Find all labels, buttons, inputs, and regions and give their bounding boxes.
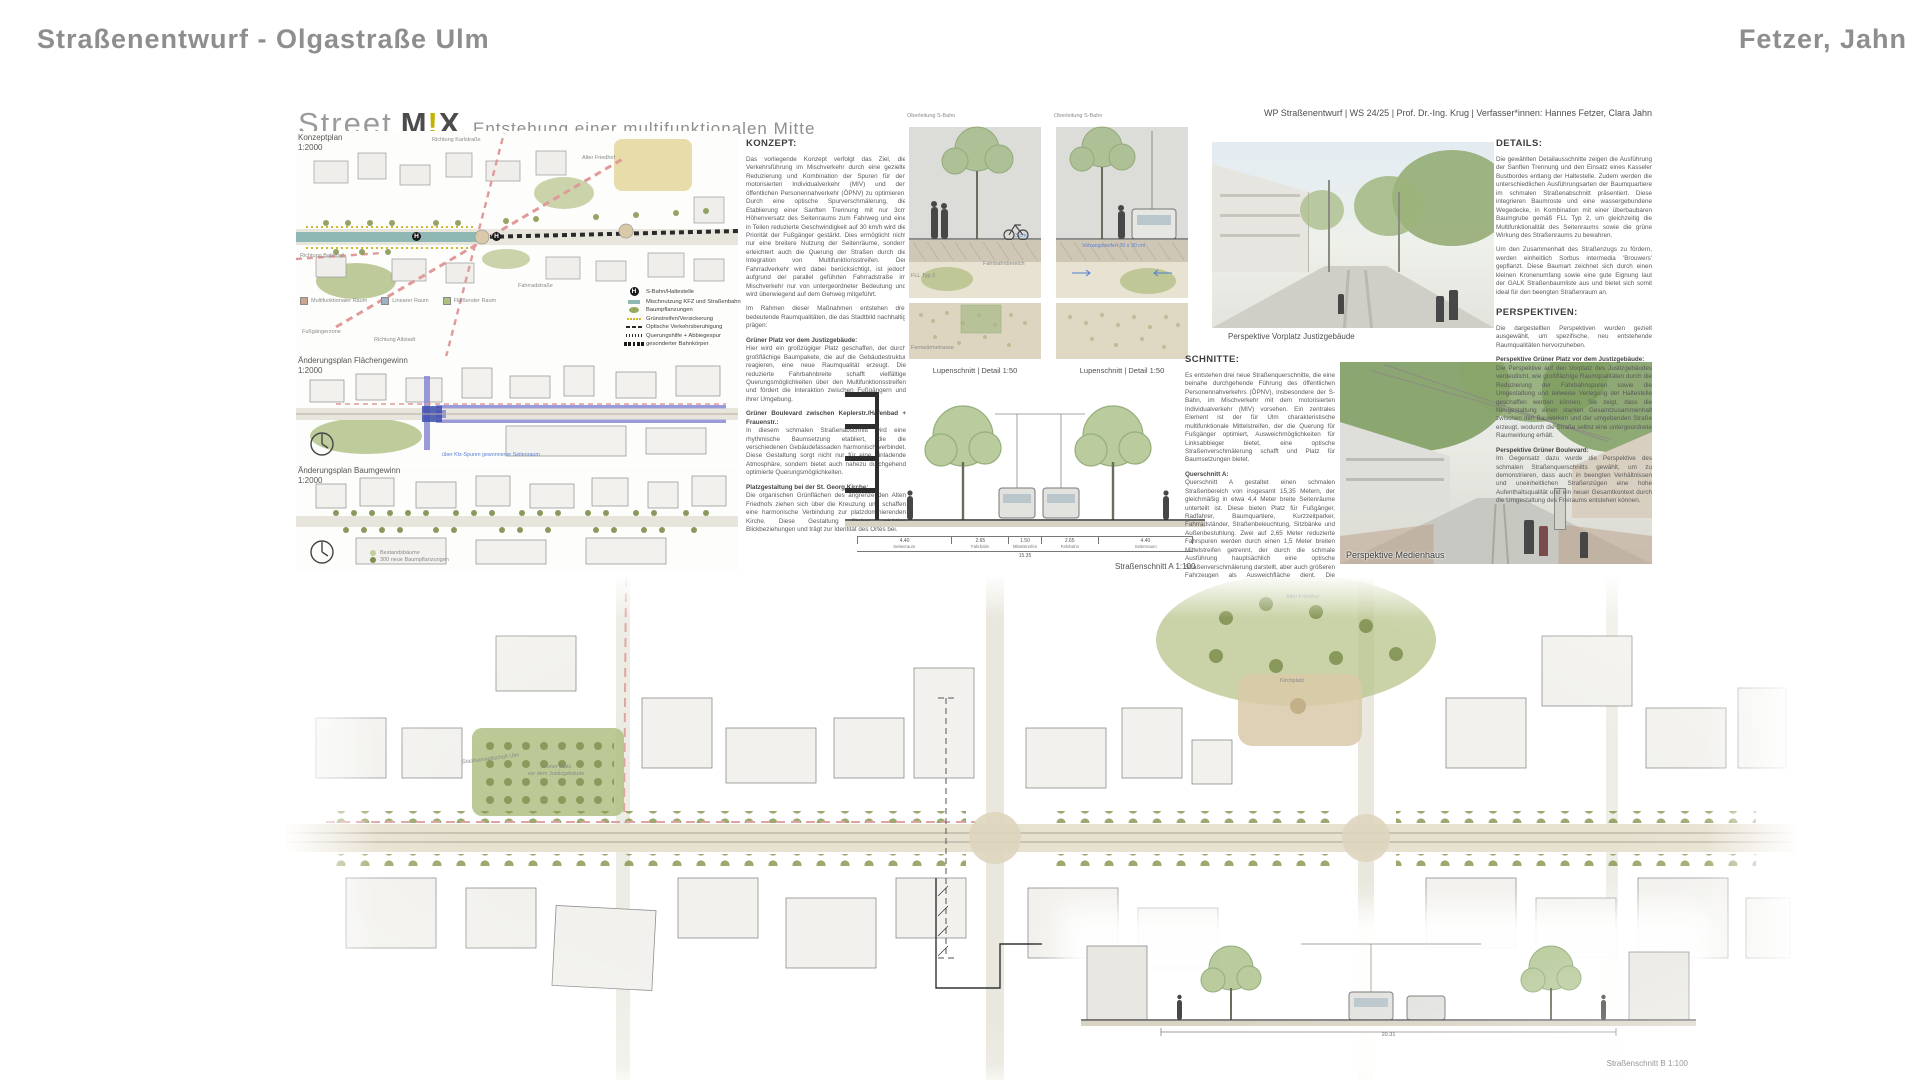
legend-label: Grünstreifen/Versickerung bbox=[646, 316, 713, 322]
bestandsbaum-swatch bbox=[370, 550, 376, 556]
konzept-paragraph: Im Rahmen dieser Maßnahmen entstehen dre… bbox=[746, 305, 906, 330]
misch-swatch bbox=[628, 300, 640, 304]
details-paragraph: Um den Zusammenhalt des Straßenzugs zu f… bbox=[1496, 246, 1652, 297]
haltestelle-icon: H bbox=[630, 287, 639, 296]
perspektiven-paragraph: Die Perspektive auf den Vorplatz des Jus… bbox=[1496, 365, 1652, 440]
bahnkoerper-swatch bbox=[624, 342, 644, 346]
baum-swatch bbox=[629, 307, 639, 313]
konzept-paragraph: Das vorliegende Konzept verfolgt das Zie… bbox=[746, 156, 906, 299]
flaechengewinn-map: Änderungsplan Flächengewinn 1:2000 bbox=[296, 356, 738, 464]
haltestelle-icon: H bbox=[412, 232, 421, 241]
dim-value: 4.40 bbox=[1098, 537, 1193, 544]
legend-label: Baumpflanzungen bbox=[646, 307, 693, 313]
baumgewinn-title: Änderungsplan Baumgewinn 1:2000 bbox=[298, 466, 400, 486]
lageplan-siteplan: Alter Friedhof Kirchplatz Staatsanwaltsc… bbox=[286, 578, 1796, 1080]
schnitte-heading: SCHNITTE: bbox=[1185, 354, 1335, 365]
legend-label: S-Bahn/Haltestelle bbox=[646, 289, 694, 295]
space-type-label: Fließender Raum bbox=[454, 298, 497, 305]
zone-label: Mittelstreifen bbox=[1009, 544, 1041, 549]
schnitt-b-label: Straßenschnitt B 1:100 bbox=[1607, 1059, 1688, 1068]
space-types-row: Multifunktionaler Raum Linearer Raum Fli… bbox=[300, 297, 496, 305]
beruhigung-swatch bbox=[626, 326, 642, 329]
lupe2-caption: Oberleitung S-Bahn bbox=[1054, 113, 1102, 120]
konzeptplan-title: Konzeptplan 1:2000 bbox=[298, 133, 342, 153]
baumgewinn-map: Änderungsplan Baumgewinn 1:2000 bbox=[296, 466, 738, 572]
lupe2-note-vorrang: Vorrangstreifen 30 x 30 cm bbox=[1082, 243, 1145, 249]
flaechengewinn-note: über Kfz-Spuren gewonnener Seitenraum bbox=[442, 452, 540, 458]
perspektiven-heading: PERSPEKTIVEN: bbox=[1496, 307, 1652, 318]
details-heading: DETAILS: bbox=[1496, 138, 1652, 149]
legend-label: gesonderter Bahnkörper bbox=[646, 341, 709, 347]
pedestrian-silhouette bbox=[1338, 294, 1344, 314]
siteplan-label-alter-friedhof: Alter Friedhof bbox=[1286, 594, 1319, 601]
dim-value: 2.65 bbox=[1041, 537, 1098, 544]
map-label-alter-friedhof: Alter Friedhof bbox=[582, 155, 615, 162]
map-label-fussgaengerzone: Fußgängerzone bbox=[302, 329, 341, 336]
perspective-justizgebaeude-image bbox=[1212, 142, 1494, 328]
konzept-subhead: Grüner Platz vor dem Justizgebäude: bbox=[746, 337, 857, 344]
lupe1-caption: Oberleitung S-Bahn bbox=[907, 113, 955, 120]
pedestrian-silhouette bbox=[1524, 520, 1534, 554]
perspektiven-subhead: Perspektive Grüner Boulevard: bbox=[1496, 447, 1589, 454]
strassenschnitt-b: 20.31 Straßenschnitt B 1:100 bbox=[1081, 928, 1696, 1070]
legend-label: Mischnutzung KFZ und Straßenbahn bbox=[646, 299, 741, 305]
dim-value: 1.50 bbox=[1008, 537, 1040, 544]
perspektiven-subhead: Perspektive Grüner Platz vor dem Justizg… bbox=[1496, 356, 1644, 363]
lupe1-note-3cm: 3 cm bbox=[1015, 233, 1026, 239]
gruenstreifen-swatch bbox=[627, 318, 641, 320]
lupe1-label: Lupenschnitt | Detail 1:50 bbox=[905, 366, 1045, 375]
pedestrian-silhouette bbox=[1539, 526, 1548, 556]
lupe1-note-fahrbahn: Fahrbahnbereich bbox=[983, 261, 1025, 268]
multifunktional-swatch bbox=[300, 297, 308, 305]
fliessend-swatch bbox=[443, 297, 451, 305]
perspektiven-paragraph: Die dargestellten Perspektiven wurden ge… bbox=[1496, 325, 1652, 350]
legend-label: Querungshilfe + Abbiegespur bbox=[646, 333, 721, 339]
schnitt-a-dims: 4.40 2.65 1.50 2.65 4.40 Seitenraum Fahr… bbox=[857, 536, 1193, 559]
pedestrian-silhouette bbox=[1436, 296, 1444, 322]
lupenschnitt-panel-2: Oberleitung S-Bahn bbox=[1052, 113, 1192, 363]
pedestrian-silhouette bbox=[1580, 532, 1588, 558]
linear-swatch bbox=[381, 297, 389, 305]
zone-label: Fahrbahn bbox=[951, 544, 1008, 549]
schnitt-b-drawing bbox=[1081, 928, 1696, 1038]
siteplan-label-gruener-platz: Grüner Platz vor dem Justizgebäude bbox=[516, 764, 596, 777]
map-label-richtung-altstadt: Richtung Altstadt bbox=[374, 337, 415, 344]
lupe1-note-fll: FLL Typ 2 bbox=[911, 273, 935, 280]
dim-value: 4.40 bbox=[857, 537, 951, 544]
zone-label: Seitenraum bbox=[1099, 544, 1193, 549]
neupflanzung-swatch bbox=[370, 557, 376, 563]
schnitt-b-total: 20.31 bbox=[1081, 1032, 1696, 1038]
baumgewinn-legend: Bestandsbäume 300 neue Baumpflanzungen bbox=[370, 550, 449, 563]
map-label-richtung-karlstrasse: Richtung Karlstraße bbox=[432, 137, 481, 144]
konzeptplan-map: Konzeptplan 1:2000 bbox=[296, 131, 738, 357]
perspective-2-label: Perspektive Medienhaus bbox=[1346, 550, 1445, 560]
map-label-fahrradstrasse: Fahrradstraße bbox=[518, 283, 553, 290]
schnitt-a-label: Straßenschnitt A 1:100 bbox=[1115, 562, 1196, 571]
space-type-label: Multifunktionaler Raum bbox=[311, 298, 367, 305]
lupenschnitt-panel-1: Oberleitung S-Bahn bbox=[905, 113, 1045, 363]
legend-label: Bestandsbäume bbox=[380, 550, 420, 557]
lupe1-note-fernwaerme: Fernwärmetrasse bbox=[911, 345, 954, 352]
strassenschnitt-a: 4.40 2.65 1.50 2.65 4.40 Seitenraum Fahr… bbox=[845, 384, 1205, 576]
zone-label: Fahrbahn bbox=[1041, 544, 1098, 549]
poster-sheet: Straßenentwurf - Olgastraße Ulm Fetzer, … bbox=[0, 0, 1920, 1080]
credit-line: WP Straßenentwurf | WS 24/25 | Prof. Dr.… bbox=[1210, 108, 1652, 118]
schnitte-subhead: Querschnitt A: bbox=[1185, 471, 1229, 478]
pedestrian-silhouette bbox=[1449, 290, 1458, 320]
konzeptplan-legend: HS-Bahn/Haltestelle Mischnutzung KFZ und… bbox=[626, 287, 738, 347]
dim-value: 2.65 bbox=[951, 537, 1008, 544]
haltestelle-icon: H bbox=[492, 232, 501, 241]
space-type-label: Linearer Raum bbox=[392, 298, 428, 305]
dim-total: 15.35 bbox=[857, 551, 1193, 559]
flaechengewinn-title: Änderungsplan Flächengewinn 1:2000 bbox=[298, 356, 408, 376]
lupe1-drawing bbox=[905, 123, 1045, 373]
perspektiven-paragraph: Im Gegensatz dazu wurde die Perspektive … bbox=[1496, 455, 1652, 504]
page-title: Straßenentwurf - Olgastraße Ulm bbox=[37, 24, 490, 55]
querung-swatch bbox=[626, 334, 643, 337]
map-label-richtung-bahnhof: Richtung Bahnhof bbox=[300, 253, 344, 260]
perspective-1-label: Perspektive Vorplatz Justizgebäude bbox=[1228, 332, 1355, 341]
schnitte-paragraph: Es entstehen drei neue Straßenquerschnit… bbox=[1185, 372, 1335, 465]
zone-label: Seitenraum bbox=[857, 544, 951, 549]
author-names: Fetzer, Jahn bbox=[1739, 24, 1907, 55]
lupe2-label: Lupenschnitt | Detail 1:50 bbox=[1052, 366, 1192, 375]
details-block: DETAILS: Die gewählten Detailausschnitte… bbox=[1496, 138, 1652, 512]
legend-label: 300 neue Baumpflanzungen bbox=[380, 557, 449, 564]
siteplan-label-kirchplatz: Kirchplatz bbox=[1280, 678, 1304, 685]
details-paragraph: Die gewählten Detailausschnitte zeigen d… bbox=[1496, 156, 1652, 240]
schnitt-a-drawing bbox=[845, 384, 1205, 534]
konzept-heading: KONZEPT: bbox=[746, 138, 906, 149]
legend-label: Optische Verkehrsberuhigung bbox=[646, 324, 722, 330]
